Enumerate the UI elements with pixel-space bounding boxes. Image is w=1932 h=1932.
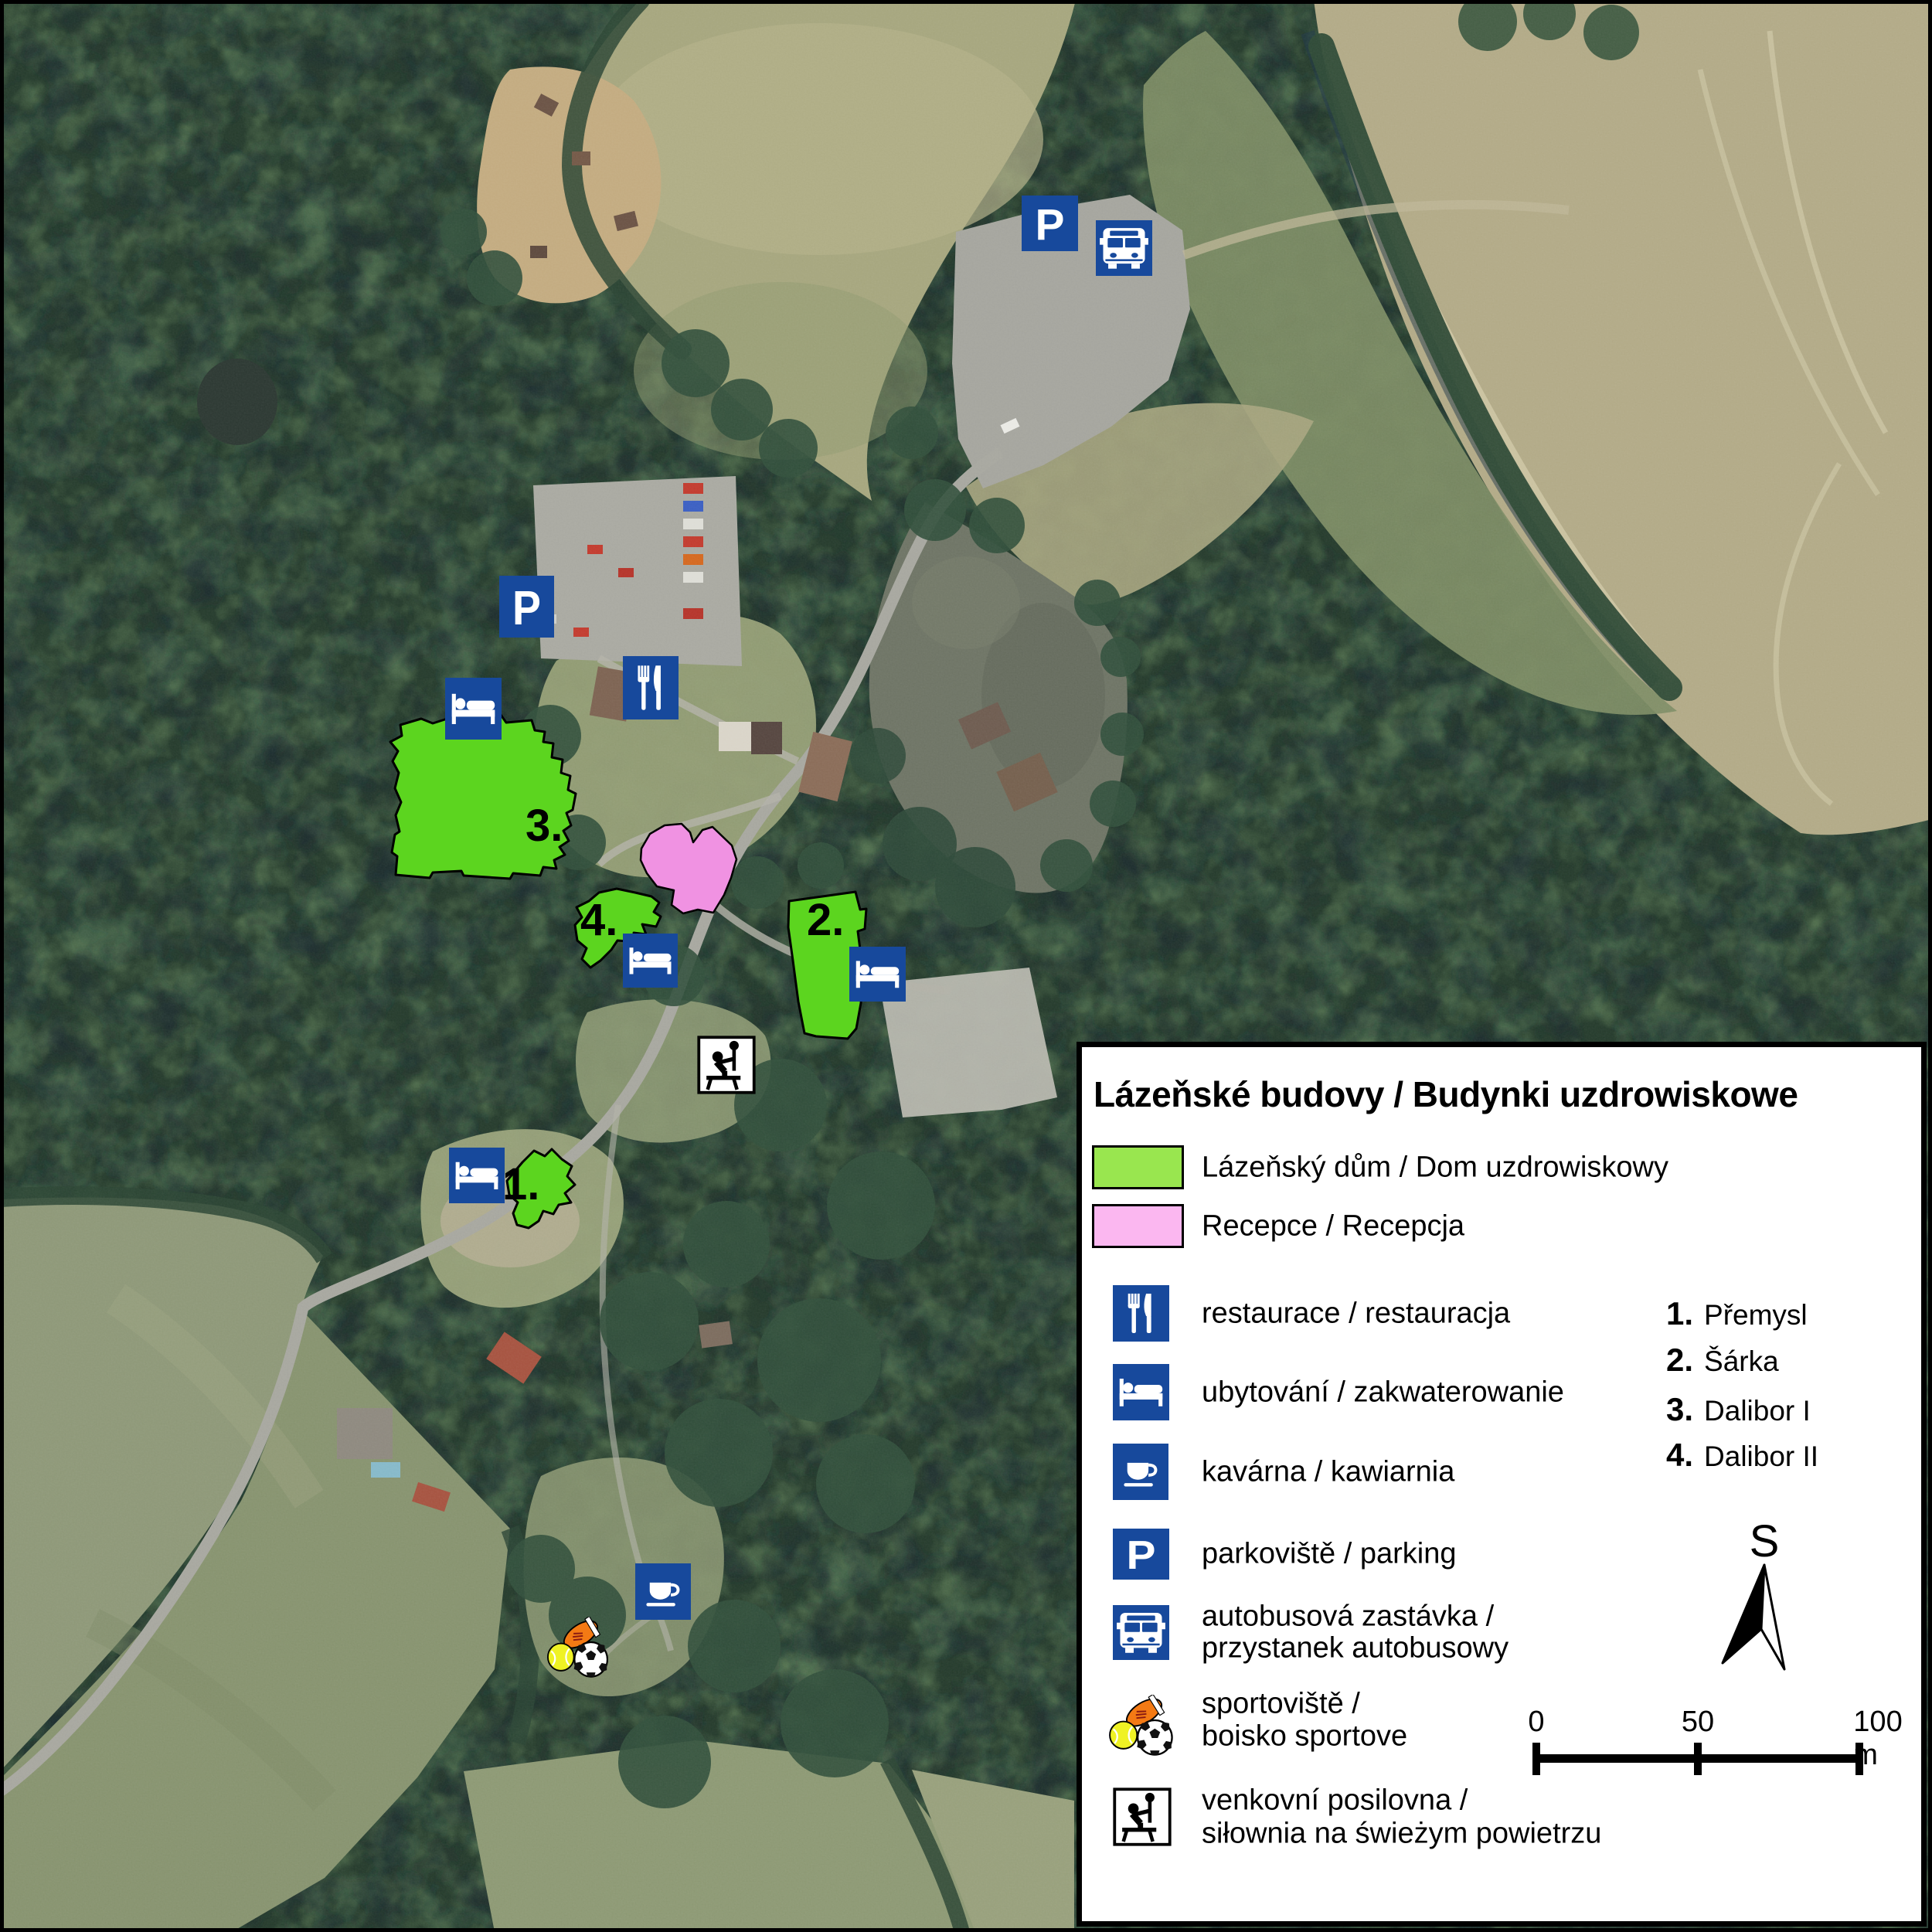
scale-tick-100 [1855, 1743, 1863, 1775]
aerial-map: P [0, 0, 1932, 1932]
outdoor-gym-label-line1: venkovní posilovna / [1202, 1784, 1468, 1818]
parking-icon [1022, 196, 1078, 251]
accommodation-icon [849, 947, 906, 1002]
spa-house-label: Lázeňský dům / Dom uzdrowiskowy [1202, 1151, 1668, 1185]
accommodation-label: ubytování / zakwaterowanie [1202, 1376, 1564, 1410]
accommodation-icon [445, 678, 502, 740]
legend-title: Lázeňské budovy / Budynki uzdrowiskowe [1094, 1073, 1798, 1115]
parking-icon [1113, 1529, 1169, 1580]
parking-label: parkoviště / parking [1202, 1538, 1457, 1571]
name-dalibor-2: Dalibor II [1704, 1440, 1818, 1472]
name-dalibor-1: Dalibor I [1704, 1395, 1811, 1427]
num-2: 2. [1666, 1342, 1693, 1378]
north-arrow-icon [1716, 1553, 1793, 1677]
num-4: 4. [1666, 1437, 1693, 1473]
building-label-2: 2. [807, 898, 844, 943]
bed-icon [1113, 1364, 1169, 1420]
numbered-item-1: 1.Přemysl [1666, 1295, 1808, 1332]
bus-stop-icon [1096, 220, 1152, 276]
sports-field-label-line1: sportoviště / [1202, 1688, 1360, 1721]
num-1: 1. [1666, 1295, 1693, 1332]
numbered-item-4: 4.Dalibor II [1666, 1437, 1818, 1474]
building-label-4: 4. [580, 898, 617, 943]
restaurant-icon [623, 656, 679, 719]
accommodation-icon [449, 1148, 505, 1203]
scale-0: 0 [1528, 1706, 1544, 1739]
sports-icon [1107, 1695, 1179, 1761]
cafe-label: kavárna / kawiarnia [1202, 1456, 1454, 1489]
restaurant-icon [1113, 1285, 1169, 1342]
map-legend: Lázeňské budovy / Budynki uzdrowiskowe L… [1077, 1042, 1927, 1927]
numbered-item-2: 2.Šárka [1666, 1342, 1779, 1379]
building-label-1: 1. [502, 1162, 539, 1207]
bus-stop-label-line2: przystanek autobusowy [1202, 1632, 1509, 1665]
restaurant-label: restaurace / restauracja [1202, 1298, 1510, 1331]
num-3: 3. [1666, 1391, 1693, 1427]
building-label-3: 3. [526, 804, 563, 849]
name-sarka: Šárka [1704, 1345, 1779, 1377]
sports-field-label-line2: boisko sportove [1202, 1720, 1407, 1753]
bus-icon [1113, 1605, 1169, 1660]
reception-label: Recepce / Recepcja [1202, 1210, 1464, 1243]
spa-house-swatch [1092, 1145, 1184, 1189]
gym-icon [1113, 1787, 1172, 1846]
bus-stop-label-line1: autobusová zastávka / [1202, 1600, 1494, 1634]
scale-50: 50 [1682, 1706, 1714, 1739]
parking-icon [499, 576, 554, 638]
sports-field-icon [546, 1617, 614, 1683]
outdoor-gym-icon [697, 1036, 756, 1094]
outdoor-gym-label-line2: siłownia na świeżym powietrzu [1202, 1818, 1601, 1851]
accommodation-icon [623, 934, 678, 988]
scale-tick-0 [1532, 1743, 1540, 1775]
scale-tick-50 [1694, 1743, 1702, 1775]
cafe-icon [635, 1563, 691, 1620]
name-premysl: Přemysl [1704, 1299, 1808, 1331]
reception-swatch [1092, 1204, 1184, 1248]
coffee-icon [1113, 1444, 1168, 1500]
numbered-item-3: 3.Dalibor I [1666, 1391, 1811, 1428]
